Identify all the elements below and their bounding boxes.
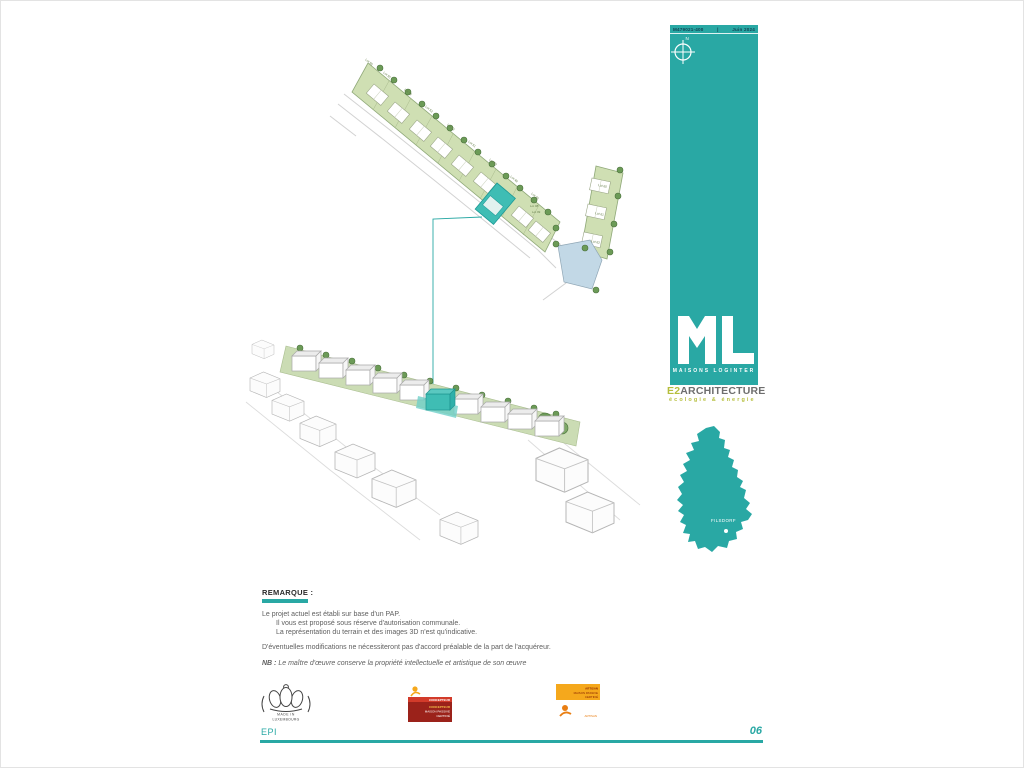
svg-text:Lot 08: Lot 08	[530, 204, 539, 208]
footer-rule	[260, 740, 763, 743]
artisan-maison-passive-badge: ARTISAN MAISON PASSIVE CERTIFIÉ ARTISAN	[556, 684, 600, 722]
remark-line: La représentation du terrain et des imag…	[276, 629, 477, 636]
remark-title-underline	[262, 599, 308, 603]
ml-logo	[678, 316, 754, 364]
leader-line	[433, 217, 482, 406]
svg-text:N: N	[686, 36, 689, 41]
badge-figure-icon	[412, 686, 417, 691]
badge-caption: ARTISAN	[585, 714, 597, 718]
nb-text: Le maître d'œuvre conserve la propriété …	[278, 660, 526, 667]
badge-band-text: CONCEPTEUR	[429, 698, 451, 702]
svg-text:CERTIFIÉ: CERTIFIÉ	[436, 713, 450, 718]
remark-line: Le projet actuel est établi sur base d'u…	[262, 611, 400, 618]
made-in-luxembourg-badge: MADE IN LUXEMBOURG	[258, 682, 314, 724]
studio-name: ARCHITECTURE	[680, 385, 765, 397]
sheet-date: Juin 2024	[732, 27, 755, 32]
remark-title: REMARQUE :	[262, 588, 313, 597]
concepteur-maison-passive-badge: CONCEPTEUR CONCEPTEUR MAISON PASSIVE CER…	[408, 684, 452, 722]
axonometric-view	[246, 340, 640, 544]
page-number: 06	[700, 725, 762, 737]
remark-line: Il vous est proposé sous réserve d'autor…	[276, 620, 460, 627]
reference-separator: |	[717, 27, 719, 32]
svg-text:CONCEPTEUR: CONCEPTEUR	[429, 705, 451, 709]
doc-reference: M479021-400	[673, 27, 704, 32]
made-in-line1: MADE IN	[277, 713, 295, 717]
location-marker-dot	[724, 529, 728, 533]
svg-text:MAISON PASSIVE: MAISON PASSIVE	[425, 710, 450, 714]
made-in-line2: LUXEMBOURG	[272, 718, 299, 722]
luxembourg-map: FILSDORF	[668, 424, 758, 556]
company-name: MAISONS LOGINTER	[670, 368, 758, 374]
plan-sheet: Lot 56 Lot 55 Lot 54 Lot 53 Lot 52 Lot 5…	[0, 0, 1024, 768]
remark-modifications: D'éventuelles modifications ne nécessite…	[262, 644, 551, 651]
sheet-reference-bar: M479021-400 | Juin 2024	[670, 25, 758, 34]
remark-nb: NB : Le maître d'œuvre conserve la propr…	[262, 660, 526, 667]
location-label: FILSDORF	[711, 518, 736, 523]
north-compass-icon: N	[668, 34, 702, 70]
svg-text:CERTIFIÉ: CERTIFIÉ	[585, 694, 598, 699]
nb-label: NB :	[262, 660, 276, 667]
site-plan: Lot 56 Lot 55 Lot 54 Lot 53 Lot 52 Lot 5…	[330, 58, 623, 300]
project-code: EPI	[261, 727, 277, 737]
studio-tagline: écologie & énergie	[669, 397, 764, 403]
svg-text:Lot 09: Lot 09	[532, 210, 541, 214]
house-footprints	[366, 84, 550, 242]
architecture-studio-logo: E2ARCHITECTURE	[667, 385, 767, 397]
badge-figure-icon	[562, 705, 568, 711]
drawing-area: Lot 56 Lot 55 Lot 54 Lot 53 Lot 52 Lot 5…	[240, 40, 650, 560]
studio-prefix: E2	[667, 385, 680, 397]
